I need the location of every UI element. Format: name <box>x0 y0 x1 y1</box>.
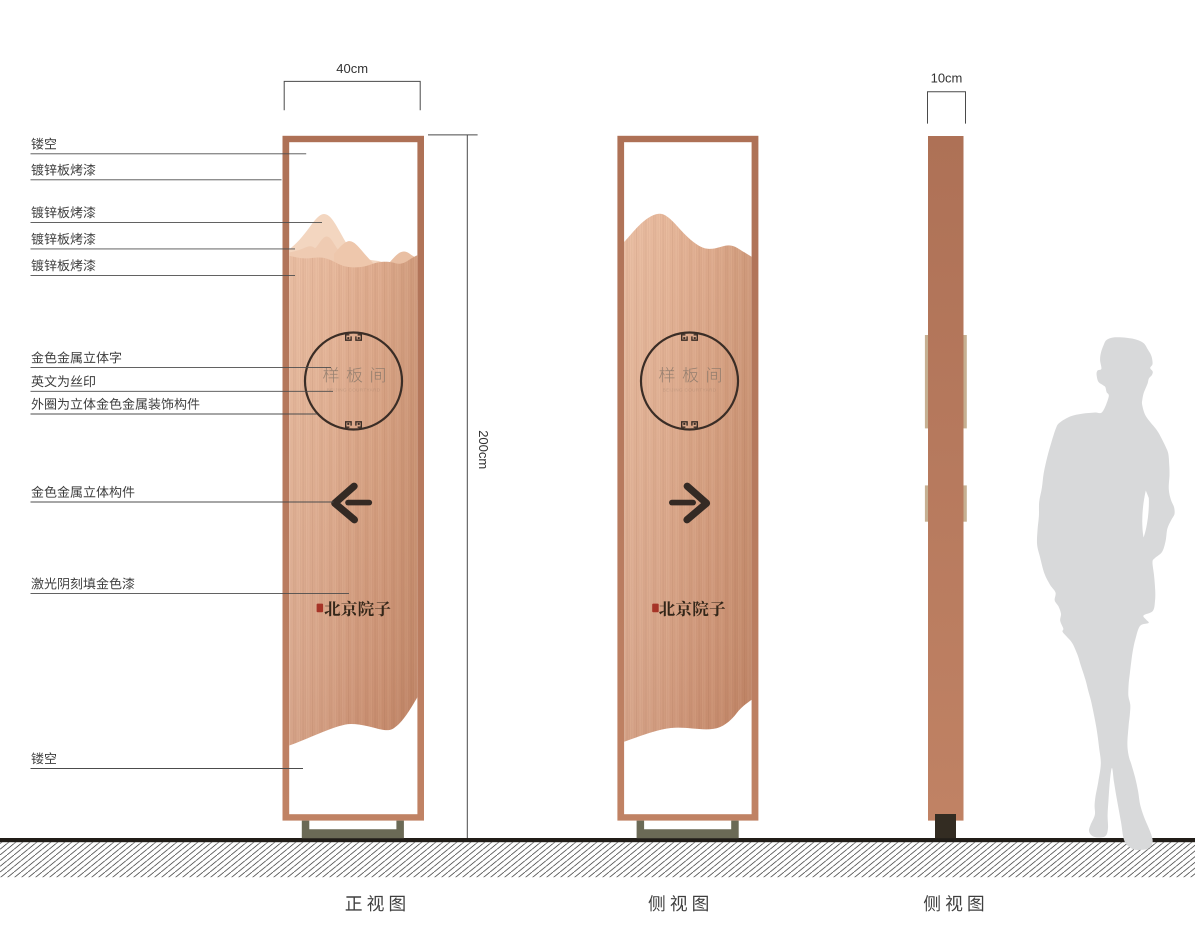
svg-text:10cm: 10cm <box>931 70 963 85</box>
svg-text:BEIJING COURTYARD: BEIJING COURTYARD <box>663 388 717 393</box>
svg-text:40cm: 40cm <box>336 61 368 76</box>
svg-text:200cm: 200cm <box>476 430 491 469</box>
svg-text:BEIJING COURTYARD: BEIJING COURTYARD <box>327 388 381 393</box>
